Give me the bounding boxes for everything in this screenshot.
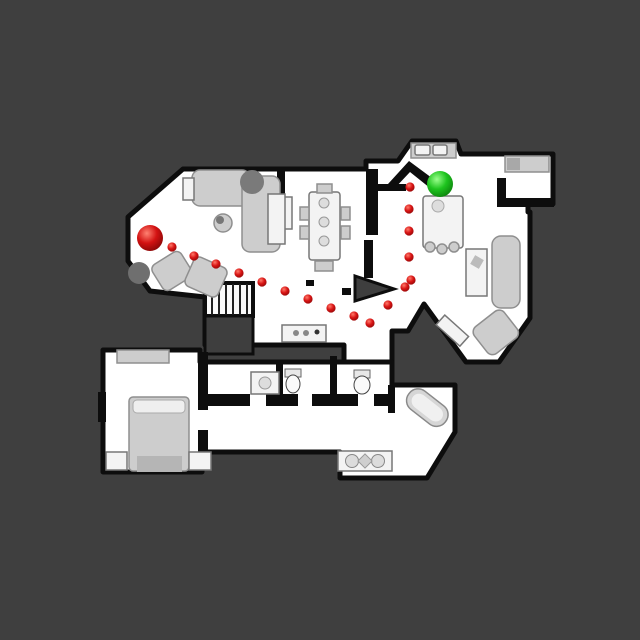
living-console: [183, 178, 194, 200]
dining-hall-wall: [364, 240, 373, 278]
island-decor: [432, 200, 444, 212]
bath-divider-wall-2: [330, 356, 337, 396]
path-dot: [211, 259, 220, 268]
nightstand-left: [106, 452, 127, 470]
path-dot: [326, 303, 335, 312]
nightstand-right: [189, 452, 211, 470]
vanity-sink-2: [372, 455, 385, 468]
path-dot: [167, 242, 176, 251]
living-plant-center: [216, 216, 224, 224]
closet: [117, 350, 169, 363]
desk-item-3: [315, 330, 320, 335]
living-plant: [214, 214, 232, 232]
path-dot: [189, 251, 198, 260]
goal-marker: [427, 171, 453, 197]
vanity-sink-1: [346, 455, 359, 468]
plant-floor: [128, 262, 150, 284]
stairwell-void: [205, 316, 253, 354]
place-setting-1: [319, 198, 329, 208]
hall-wall-mark-1: [306, 280, 314, 286]
desk-item-2: [303, 330, 309, 336]
path-dot: [404, 226, 413, 235]
nook-appliance: [507, 158, 520, 170]
dining-chair-r1: [341, 207, 350, 220]
place-setting-2: [319, 217, 329, 227]
start-marker: [137, 225, 163, 251]
dining-kitchen-wall: [366, 169, 378, 235]
path-dot: [234, 268, 243, 277]
path-dot: [383, 300, 392, 309]
bed-pillows: [133, 400, 185, 413]
washer-door: [259, 377, 271, 389]
dining-chair-bottom: [315, 261, 333, 271]
sink-basin-1: [415, 145, 430, 155]
island-stool-3: [449, 242, 459, 252]
bed-headboard: [137, 456, 182, 472]
dining-chair-l1: [300, 207, 309, 220]
door-gap-2: [298, 394, 312, 408]
floorplan-canvas: [0, 0, 640, 640]
tub-room-wall: [388, 385, 395, 413]
desk-item-1: [293, 330, 299, 336]
dining-chair-l2: [300, 226, 309, 239]
scene-viewport: [0, 0, 640, 640]
family-sofa: [492, 236, 520, 308]
plant-corner: [240, 170, 264, 194]
dining-chair-top: [317, 184, 332, 193]
path-dot: [406, 275, 415, 284]
place-setting-3: [319, 236, 329, 246]
path-dot: [400, 282, 409, 291]
exterior-bump: [98, 392, 106, 422]
sink-basin-2: [433, 145, 447, 155]
path-dot: [303, 294, 312, 303]
toilet-2: [354, 376, 370, 394]
hall-wall-mark-2: [342, 288, 351, 295]
bedroom-hall-wall-upper: [198, 352, 208, 410]
path-dot: [349, 311, 358, 320]
island-stool-2: [437, 244, 447, 254]
china-cabinet: [268, 194, 285, 244]
path-dot: [404, 252, 413, 261]
island-stool-1: [425, 242, 435, 252]
door-gap-1: [250, 394, 266, 408]
path-dot: [405, 182, 414, 191]
bedroom-hall-wall-lower: [198, 430, 208, 452]
nook-wall-horizontal: [497, 198, 554, 207]
door-gap-3: [358, 394, 374, 408]
dining-chair-r2: [341, 226, 350, 239]
toilet-1: [286, 375, 300, 393]
path-dot: [280, 286, 289, 295]
path-dot: [257, 277, 266, 286]
kitchen-band-wall: [366, 184, 406, 191]
path-dot: [404, 204, 413, 213]
path-dot: [365, 318, 374, 327]
